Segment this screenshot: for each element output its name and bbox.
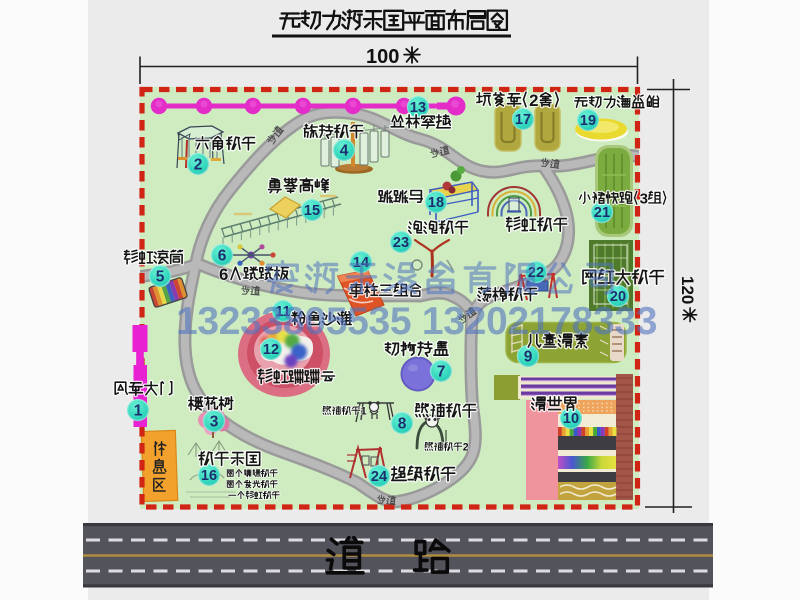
svg-text:2: 2 bbox=[194, 157, 203, 174]
svg-text:8: 8 bbox=[398, 416, 407, 433]
svg-text:18: 18 bbox=[428, 195, 444, 211]
svg-text:6: 6 bbox=[218, 248, 227, 265]
svg-text:16: 16 bbox=[201, 468, 217, 484]
svg-text:120: 120 bbox=[678, 276, 697, 304]
svg-text:1: 1 bbox=[134, 403, 143, 420]
svg-text:5: 5 bbox=[156, 269, 165, 286]
svg-text:6: 6 bbox=[219, 265, 228, 284]
svg-text:7: 7 bbox=[437, 364, 446, 381]
svg-text:3: 3 bbox=[210, 414, 219, 431]
svg-text:21: 21 bbox=[594, 205, 610, 221]
svg-text:9: 9 bbox=[524, 349, 533, 366]
svg-text:19: 19 bbox=[580, 113, 596, 129]
svg-text:2: 2 bbox=[463, 442, 469, 454]
svg-text:1: 1 bbox=[361, 406, 367, 418]
svg-text:15: 15 bbox=[304, 203, 320, 219]
svg-text:17: 17 bbox=[515, 112, 531, 128]
svg-text:2: 2 bbox=[529, 91, 538, 110]
svg-text:3: 3 bbox=[640, 190, 648, 207]
svg-text:12: 12 bbox=[263, 342, 279, 358]
svg-text:100: 100 bbox=[366, 46, 399, 68]
svg-text:13: 13 bbox=[410, 100, 426, 116]
svg-text:13233805535 13202178333: 13233805535 13202178333 bbox=[176, 300, 657, 343]
svg-text:24: 24 bbox=[371, 469, 387, 485]
svg-text:4: 4 bbox=[340, 143, 349, 160]
svg-text:10: 10 bbox=[563, 411, 579, 427]
svg-text:23: 23 bbox=[393, 235, 409, 251]
